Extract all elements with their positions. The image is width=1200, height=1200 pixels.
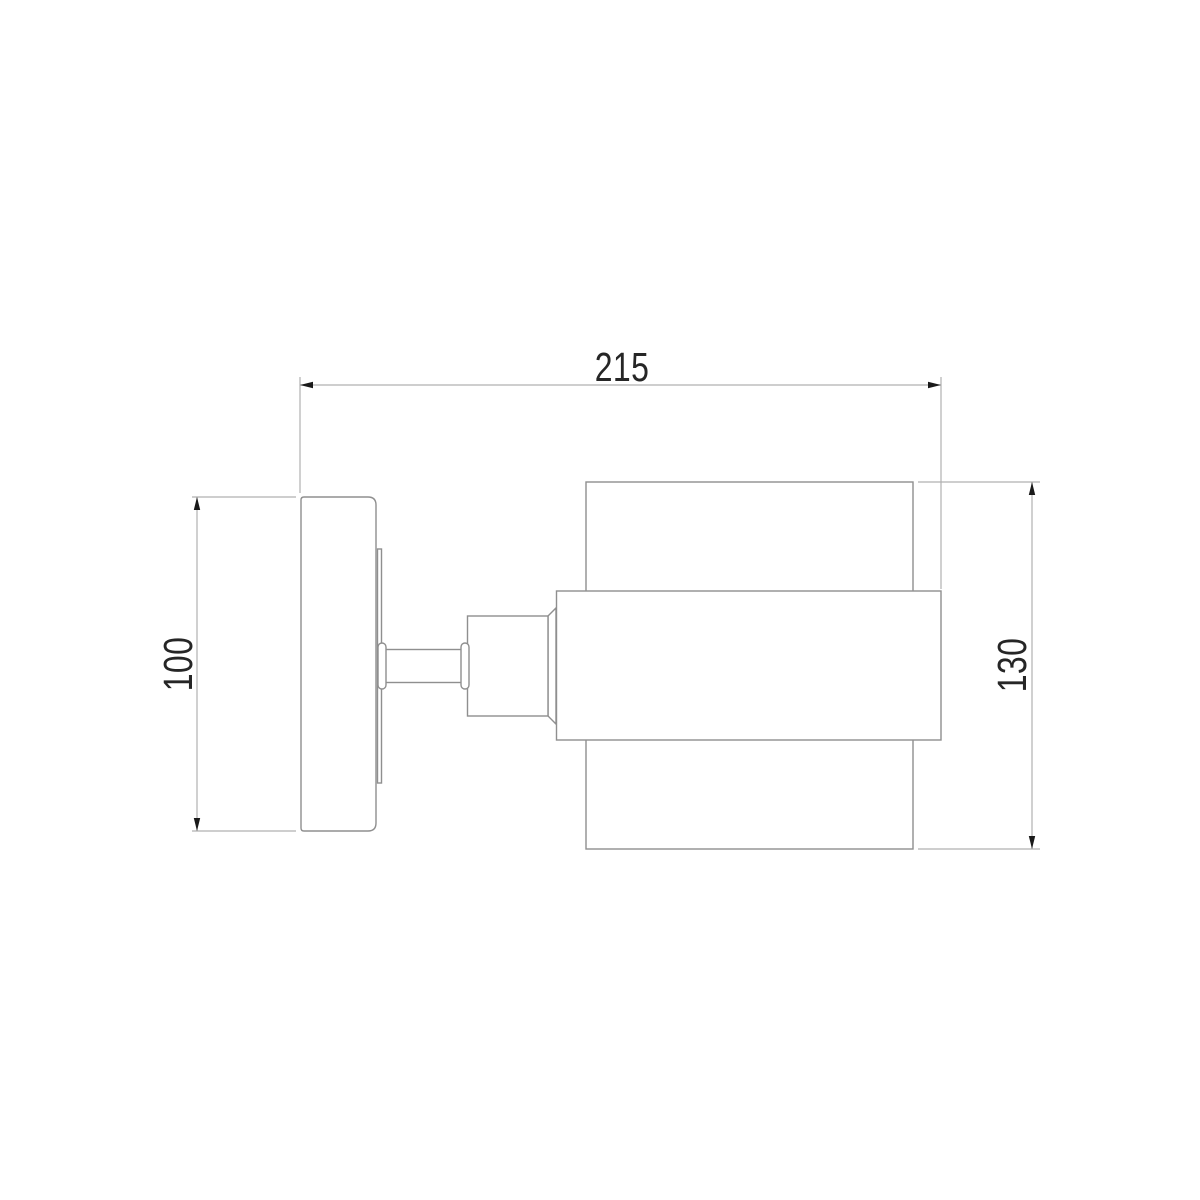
socket-cone bbox=[548, 608, 556, 724]
dim-plate-height-label: 100 bbox=[155, 637, 201, 692]
dim-width-label: 215 bbox=[595, 344, 650, 390]
shade-front-band bbox=[557, 591, 942, 740]
technical-drawing-canvas: 215 100 130 bbox=[0, 0, 1200, 1200]
dim-shade-arrow-down-icon bbox=[1029, 836, 1035, 849]
joint-block bbox=[468, 616, 549, 716]
drawing-page: 215 100 130 bbox=[0, 0, 1200, 1200]
dim-width-arrow-right-icon bbox=[928, 382, 941, 388]
dim-width-arrow-left-icon bbox=[300, 382, 313, 388]
dim-plate-height: 100 bbox=[155, 497, 296, 831]
dim-plate-arrow-up-icon bbox=[194, 497, 200, 510]
dim-shade-arrow-up-icon bbox=[1029, 482, 1035, 495]
pivot-capsule-right bbox=[461, 643, 469, 689]
lamp-geometry bbox=[301, 482, 941, 849]
wall-plate bbox=[301, 497, 376, 831]
dim-plate-arrow-down-icon bbox=[194, 818, 200, 831]
dim-shade-height-label: 130 bbox=[989, 638, 1035, 693]
arm-bar bbox=[384, 650, 463, 683]
pivot-capsule-left bbox=[378, 643, 386, 689]
